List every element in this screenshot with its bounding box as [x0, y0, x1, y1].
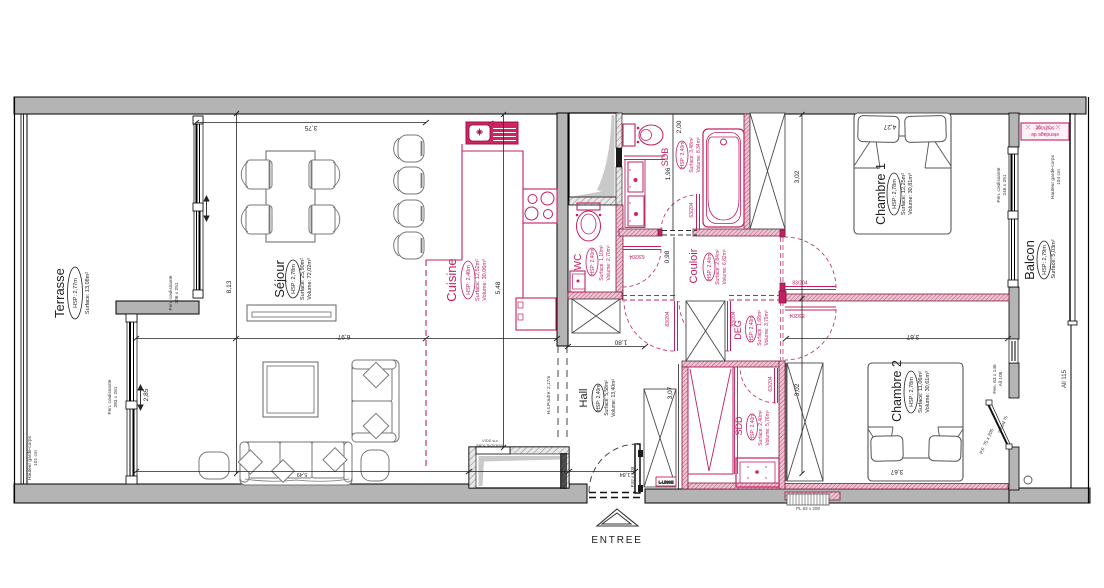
svg-text:HSP: 2,77m: HSP: 2,77m [73, 278, 79, 308]
svg-text:3,02: 3,02 [794, 170, 801, 183]
svg-text:SDB: SDB [660, 148, 670, 167]
svg-text:HSP: 2,78m: HSP: 2,78m [291, 264, 297, 294]
svg-text:Surface: 5,03m²: Surface: 5,03m² [1051, 239, 1057, 278]
svg-text:6,97: 6,97 [337, 333, 350, 340]
svg-text:63/204: 63/204 [629, 253, 645, 259]
svg-text:Surface: 5,58m²: Surface: 5,58m² [604, 380, 610, 416]
svg-text:HSP: 2,40m: HSP: 2,40m [590, 249, 596, 276]
svg-text:WC: WC [573, 254, 584, 271]
svg-text:246 x 251: 246 x 251 [1002, 174, 1008, 195]
svg-text:HSP: 2,78m: HSP: 2,78m [909, 377, 915, 407]
svg-text:3,02: 3,02 [794, 383, 801, 396]
svg-text:HSP: 2,40m: HSP: 2,40m [707, 254, 713, 281]
svg-text:HSP: 2,40m: HSP: 2,40m [596, 385, 602, 412]
svg-text:0,98: 0,98 [664, 250, 671, 263]
svg-text:63/204: 63/204 [768, 376, 774, 392]
svg-text:1,80: 1,80 [614, 339, 627, 346]
svg-text:gaine technique: gaine technique [476, 443, 505, 448]
svg-text:Surface: 3,48m²: Surface: 3,48m² [689, 137, 695, 173]
svg-text:2,00: 2,00 [676, 120, 683, 133]
svg-text:HSP: 2,40m: HSP: 2,40m [466, 265, 472, 295]
svg-text:1,96: 1,96 [665, 167, 672, 180]
svg-text:Fen. coulissante: Fen. coulissante [996, 167, 1002, 202]
svg-text:Volume: 30,06m³: Volume: 30,06m³ [482, 259, 488, 301]
svg-text:etendage de: etendage de [1031, 131, 1059, 137]
svg-text:Surface: 13,08m²: Surface: 13,08m² [85, 272, 91, 314]
svg-text:Hauteur garde-corps: Hauteur garde-corps [1050, 154, 1056, 199]
svg-text:Volume: 8,34m³: Volume: 8,34m³ [696, 137, 702, 172]
svg-text:P.92 x 2,08: P.92 x 2,08 [630, 466, 635, 487]
svg-text:Volume: 30,61m³: Volume: 30,61m³ [925, 371, 931, 413]
svg-text:63/204: 63/204 [689, 202, 695, 218]
svg-text:Surface: 1,10m²: Surface: 1,10m² [599, 245, 605, 281]
svg-text:Surface: 12,52m²: Surface: 12,52m² [475, 259, 481, 301]
svg-text:306 x 251: 306 x 251 [174, 282, 180, 303]
svg-text:Couloir: Couloir [688, 248, 700, 283]
svg-text:HSP: 2,78m: HSP: 2,78m [892, 179, 898, 209]
svg-text:Volume: 30,81m³: Volume: 30,81m³ [908, 173, 914, 215]
svg-text:PL 83 x 208: PL 83 x 208 [796, 506, 820, 511]
svg-text:Hall: Hall [578, 389, 590, 408]
svg-text:L-LINGE: L-LINGE [659, 481, 674, 485]
svg-text:5,49: 5,49 [297, 471, 308, 477]
svg-text:Volume: 6,82m³: Volume: 6,82m³ [722, 249, 728, 284]
svg-text:Balcon: Balcon [1022, 240, 1037, 280]
svg-text:Fen. coulissante: Fen. coulissante [168, 275, 174, 310]
svg-text:Hauteur garde-corps: Hauteur garde-corps [27, 435, 33, 480]
svg-text:HSP: 2,40m: HSP: 2,40m [749, 316, 755, 343]
svg-text:3,75: 3,75 [304, 124, 317, 131]
svg-text:Terrasse: Terrasse [52, 268, 67, 318]
svg-text:HSP: 2,40m: HSP: 2,40m [750, 414, 756, 441]
svg-text:Cuisine: Cuisine [444, 258, 459, 301]
svg-text:83/204: 83/204 [665, 311, 671, 327]
svg-text:8,13: 8,13 [226, 280, 233, 293]
svg-text:SDD: SDD [734, 416, 744, 436]
svg-text:HSP: 2,79m: HSP: 2,79m [1042, 245, 1048, 275]
svg-text:Surface: 1,68m²: Surface: 1,68m² [757, 310, 763, 346]
svg-text:83/204: 83/204 [789, 312, 805, 318]
svg-text:HSP: 2,40m: HSP: 2,40m [680, 142, 686, 169]
svg-text:Séjour: Séjour [272, 260, 287, 298]
svg-text:3,67: 3,67 [906, 333, 919, 340]
svg-text:Volume: 2,70m³: Volume: 2,70m³ [606, 245, 612, 280]
svg-text:4,27: 4,27 [883, 123, 896, 130]
svg-text:3,07: 3,07 [667, 386, 674, 399]
svg-text:104 cm: 104 cm [1056, 169, 1062, 185]
svg-text:Volume: 5,76m³: Volume: 5,76m³ [765, 410, 771, 445]
svg-text:Volume: 3,79m³: Volume: 3,79m³ [764, 310, 770, 345]
svg-text:Volume: 13,40m³: Volume: 13,40m³ [611, 379, 617, 417]
svg-text:All 115: All 115 [1062, 369, 1068, 388]
svg-text:83/204: 83/204 [792, 281, 808, 287]
svg-text:Surface: 25,90m²: Surface: 25,90m² [300, 258, 306, 300]
svg-text:101 cm: 101 cm [33, 450, 39, 466]
svg-text:sechage: sechage [1035, 125, 1054, 131]
svg-text:1,84: 1,84 [620, 471, 631, 477]
svg-text:Volume: 72,02m³: Volume: 72,02m³ [307, 258, 313, 300]
svg-text:2,85: 2,85 [143, 388, 150, 401]
svg-text:Surface: 2,40m²: Surface: 2,40m² [758, 410, 764, 446]
svg-text:Fen. 63 x 146: Fen. 63 x 146 [992, 364, 998, 394]
svg-text:Surface: 12,25m²: Surface: 12,25m² [901, 173, 907, 215]
svg-text:83/204: 83/204 [731, 311, 737, 327]
svg-text:Chambre 2: Chambre 2 [890, 360, 904, 422]
svg-text:283 x 261: 283 x 261 [113, 386, 119, 407]
svg-text:H.s.Poutre: 2,17m: H.s.Poutre: 2,17m [546, 376, 552, 415]
svg-text:3,67: 3,67 [890, 468, 903, 475]
svg-text:5,48: 5,48 [495, 281, 502, 294]
svg-text:Surface: 11,06m²: Surface: 11,06m² [918, 371, 924, 413]
svg-text:Fen. coulissante: Fen. coulissante [107, 379, 113, 414]
svg-text:Surface: 2,84m²: Surface: 2,84m² [715, 249, 721, 285]
svg-text:Chambre 1: Chambre 1 [874, 163, 888, 225]
svg-text:ENTREE: ENTREE [591, 535, 642, 546]
svg-text:All 105: All 105 [998, 371, 1004, 386]
